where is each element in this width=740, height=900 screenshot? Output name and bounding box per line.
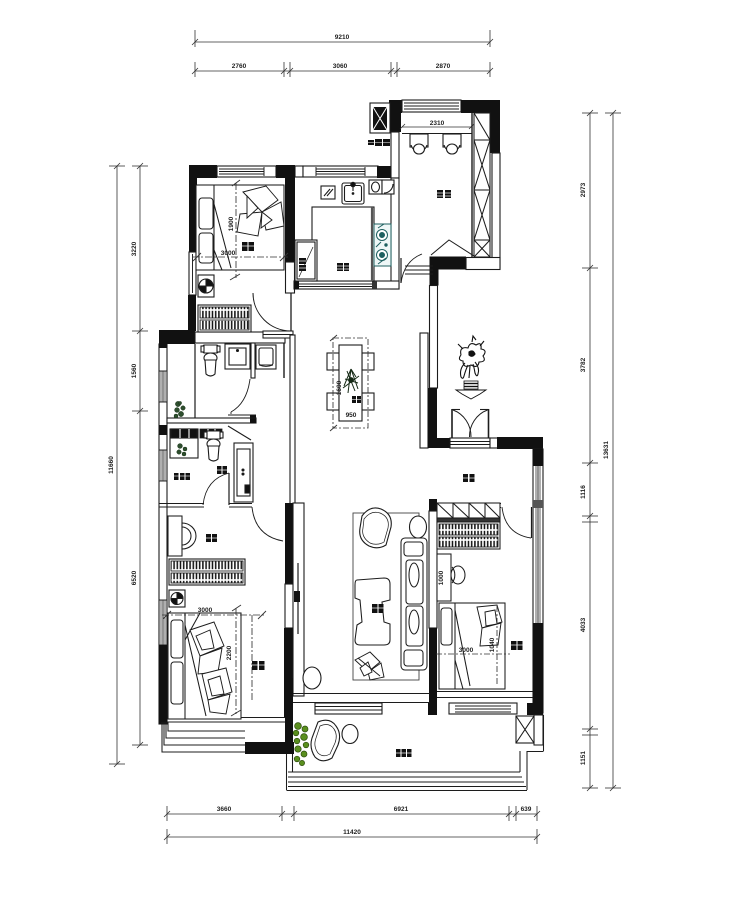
- svg-text:2870: 2870: [436, 63, 451, 70]
- svg-text:3782: 3782: [580, 357, 587, 372]
- svg-text:4033: 4033: [580, 617, 587, 632]
- svg-text:3000: 3000: [459, 647, 474, 654]
- svg-text:1151: 1151: [580, 751, 587, 765]
- svg-text:1000: 1000: [438, 570, 445, 585]
- svg-text:3000: 3000: [198, 607, 213, 614]
- svg-text:950: 950: [346, 412, 357, 419]
- svg-text:2310: 2310: [430, 120, 445, 127]
- svg-text:639: 639: [521, 806, 532, 813]
- svg-text:6520: 6520: [131, 570, 138, 585]
- svg-text:1600: 1600: [336, 380, 343, 395]
- svg-text:13631: 13631: [603, 441, 610, 459]
- svg-text:2973: 2973: [580, 182, 587, 197]
- svg-text:1900: 1900: [228, 216, 235, 231]
- svg-text:6921: 6921: [394, 806, 409, 813]
- svg-text:3000: 3000: [221, 250, 236, 257]
- svg-text:2200: 2200: [226, 645, 233, 660]
- svg-text:9210: 9210: [335, 34, 350, 41]
- svg-text:3220: 3220: [131, 241, 138, 256]
- svg-text:3660: 3660: [217, 806, 232, 813]
- svg-text:1560: 1560: [131, 363, 138, 378]
- svg-text:3060: 3060: [333, 63, 348, 70]
- svg-text:1116: 1116: [580, 485, 587, 499]
- svg-text:2760: 2760: [232, 63, 247, 70]
- svg-text:11420: 11420: [343, 829, 361, 836]
- svg-text:11660: 11660: [108, 456, 115, 474]
- svg-text:1040: 1040: [489, 637, 496, 652]
